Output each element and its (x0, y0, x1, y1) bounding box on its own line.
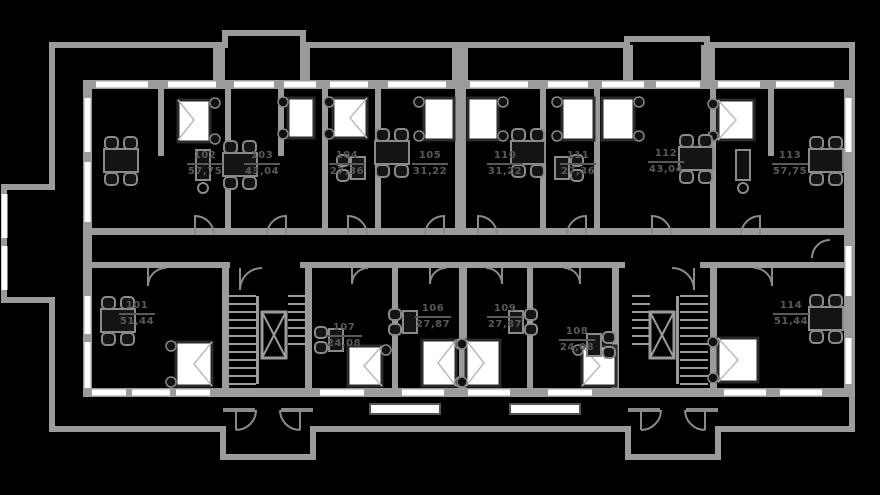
apartment-area: 27,36 (550, 165, 606, 178)
apartment-label-113: 113 57,75 (762, 150, 818, 178)
staircase-icon (288, 296, 306, 344)
apartment-area: 27,87 (405, 318, 461, 331)
apartment-number: 101 (119, 300, 155, 315)
apartment-number: 103 (244, 150, 280, 165)
apartment-area: 27,36 (319, 165, 375, 178)
apartment-label-111: 111 27,36 (550, 150, 606, 178)
apartment-label-110: 110 31,22 (477, 150, 533, 178)
apartment-number: 107 (326, 322, 362, 337)
apartment-number: 113 (772, 150, 808, 165)
apartment-area: 51,44 (109, 315, 165, 328)
apartment-label-101: 101 51,44 (109, 300, 165, 328)
apartment-area: 24,08 (316, 337, 372, 350)
apartment-area: 31,22 (402, 165, 458, 178)
apartment-number: 112 (648, 148, 684, 163)
floor-plan-page: 101 51,44 102 57,75 103 43,04 104 27,36 … (0, 0, 880, 495)
apartment-area: 51,44 (763, 315, 819, 328)
porch-step-icon (370, 404, 440, 414)
apartment-area: 24,08 (549, 341, 605, 354)
apartment-label-103: 103 43,04 (234, 150, 290, 178)
apartment-label-102: 102 57,75 (177, 150, 233, 178)
apartment-number: 105 (412, 150, 448, 165)
apartment-label-105: 105 31,22 (402, 150, 458, 178)
apartment-label-106: 106 27,87 (405, 303, 461, 331)
apartment-area: 43,04 (234, 165, 290, 178)
apartment-label-114: 114 51,44 (763, 300, 819, 328)
apartment-area: 27,87 (477, 318, 533, 331)
kitchen-counter-icon (736, 150, 750, 180)
apartment-label-112: 112 43,04 (638, 148, 694, 176)
apartment-number: 106 (415, 303, 451, 318)
apartment-label-107: 107 24,08 (316, 322, 372, 350)
apartment-area: 43,04 (638, 163, 694, 176)
apartment-number: 104 (329, 150, 365, 165)
apartment-label-109: 109 27,87 (477, 303, 533, 331)
apartment-label-108: 108 24,08 (549, 326, 605, 354)
apartment-area: 31,22 (477, 165, 533, 178)
apartment-number: 109 (487, 303, 523, 318)
staircase-icon (632, 296, 650, 344)
apartment-number: 110 (487, 150, 523, 165)
plan-background (0, 0, 880, 495)
apartment-label-104: 104 27,36 (319, 150, 375, 178)
porch-step-icon (510, 404, 580, 414)
apartment-area: 57,75 (762, 165, 818, 178)
floor-plan-drawing (0, 0, 880, 495)
apartment-number: 102 (187, 150, 223, 165)
apartment-area: 57,75 (177, 165, 233, 178)
apartment-number: 108 (559, 326, 595, 341)
apartment-number: 111 (560, 150, 596, 165)
apartment-number: 114 (773, 300, 809, 315)
